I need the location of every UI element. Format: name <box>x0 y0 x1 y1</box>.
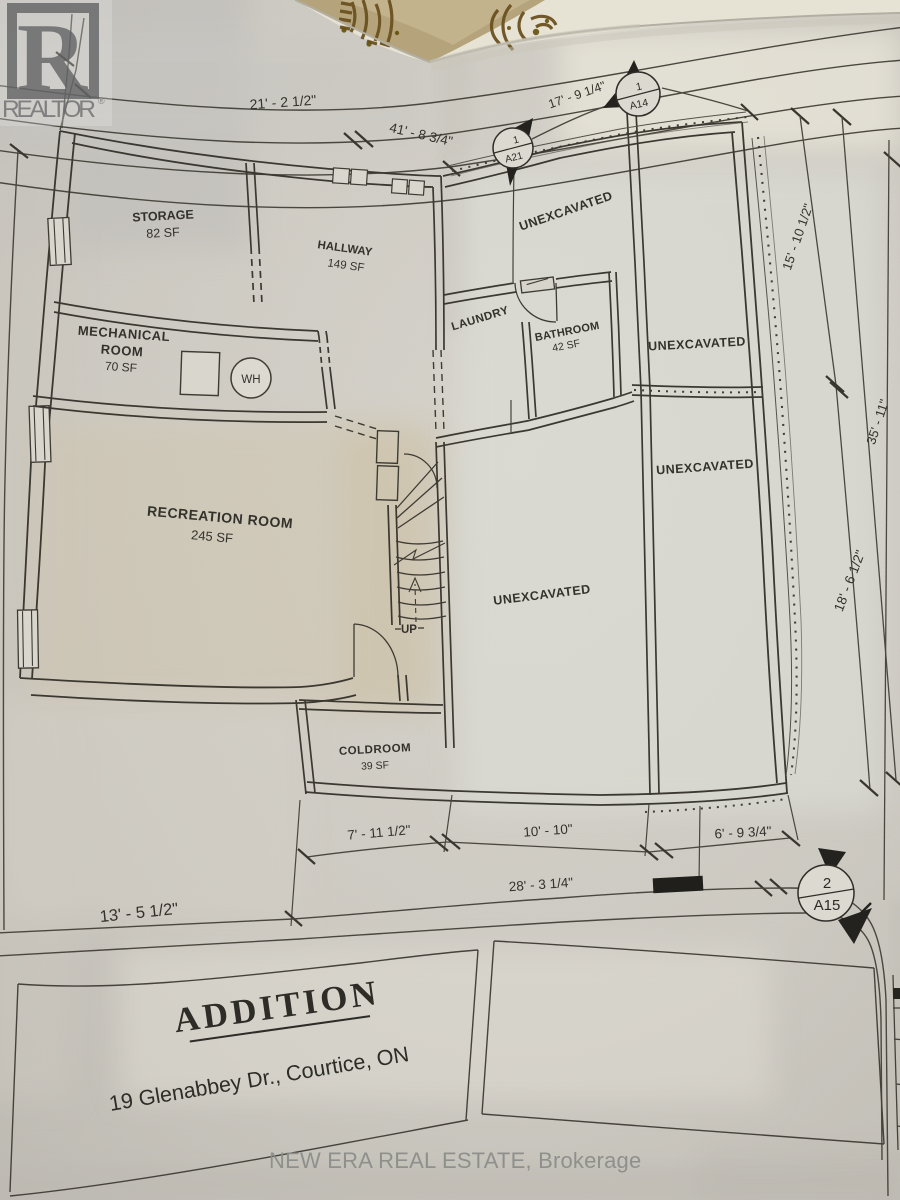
svg-text:A15: A15 <box>814 897 841 914</box>
svg-text:WH: WH <box>241 374 260 386</box>
svg-text:UP: UP <box>401 624 417 636</box>
svg-text:82 SF: 82 SF <box>146 225 180 241</box>
svg-text:70 SF: 70 SF <box>105 359 138 375</box>
svg-text:39 SF: 39 SF <box>361 759 390 772</box>
svg-text:NEW ERA REAL ESTATE, Brokerage: NEW ERA REAL ESTATE, Brokerage <box>269 1148 641 1173</box>
svg-text:2: 2 <box>823 875 831 892</box>
svg-text:6' - 9 3/4": 6' - 9 3/4" <box>714 824 772 842</box>
svg-text:ROOM: ROOM <box>100 342 143 360</box>
svg-text:®: ® <box>98 96 105 106</box>
svg-text:REALTOR: REALTOR <box>2 96 96 123</box>
svg-text:R: R <box>17 4 88 111</box>
